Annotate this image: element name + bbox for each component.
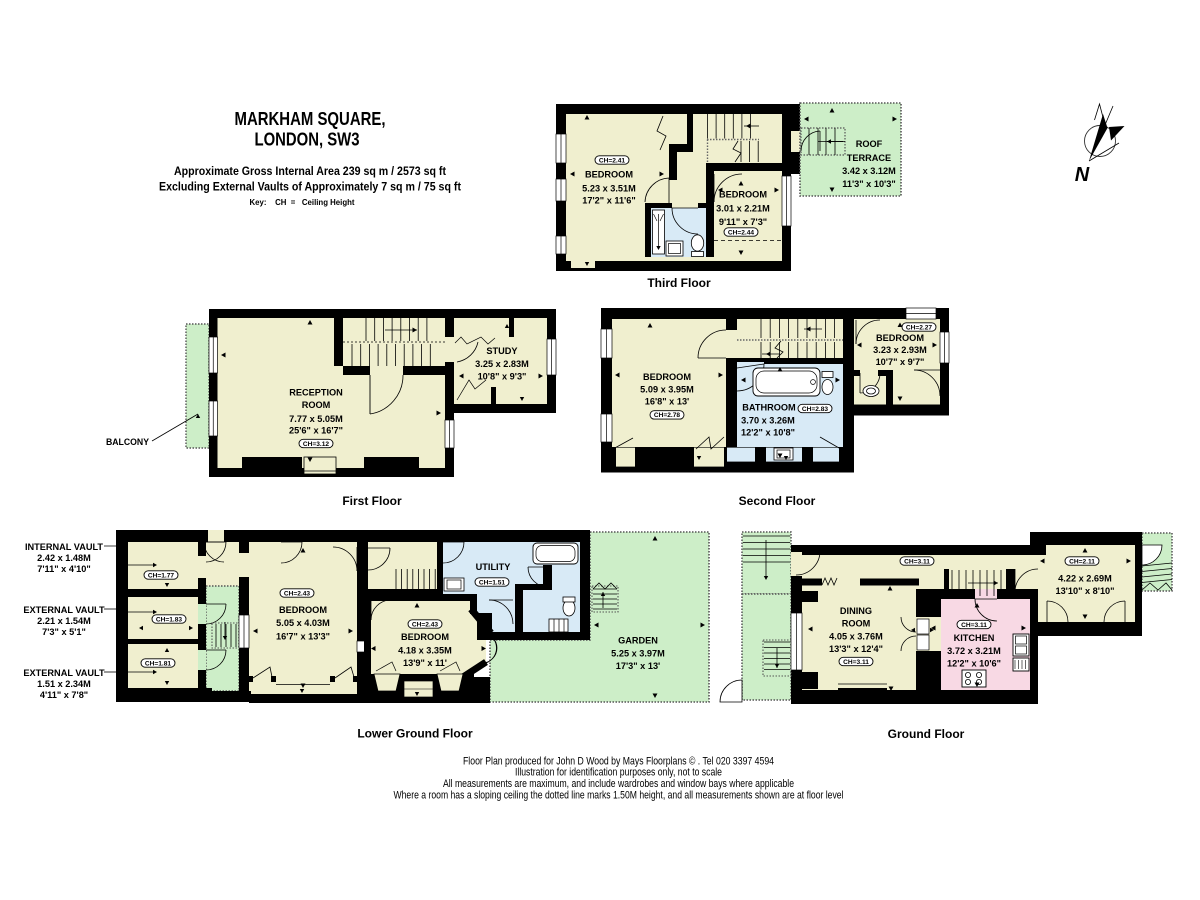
svg-text:Key: CH = Ceiling Height: Key: CH = Ceiling Height	[250, 197, 355, 207]
svg-text:13'10" x 8'10": 13'10" x 8'10"	[1055, 586, 1114, 596]
svg-text:5.25 x 3.97M: 5.25 x 3.97M	[611, 649, 665, 659]
svg-text:Lower Ground Floor: Lower Ground Floor	[357, 727, 473, 741]
svg-text:LONDON, SW3: LONDON, SW3	[255, 130, 360, 150]
svg-text:5.05 x 4.03M: 5.05 x 4.03M	[276, 618, 330, 628]
svg-text:3.42 x 3.12M: 3.42 x 3.12M	[842, 166, 896, 176]
svg-text:7'3" x 5'1": 7'3" x 5'1"	[42, 627, 86, 637]
svg-text:MARKHAM SQUARE,: MARKHAM SQUARE,	[235, 109, 386, 129]
svg-text:ROOF: ROOF	[856, 139, 883, 149]
svg-text:BEDROOM: BEDROOM	[585, 170, 633, 180]
svg-text:CH=1.51: CH=1.51	[479, 579, 506, 586]
svg-text:7.77 x 5.05M: 7.77 x 5.05M	[289, 414, 343, 424]
svg-text:CH=3.11: CH=3.11	[843, 659, 869, 666]
svg-text:BEDROOM: BEDROOM	[401, 632, 449, 642]
svg-text:12'2" x 10'6": 12'2" x 10'6"	[947, 659, 1001, 669]
svg-text:CH=2.83: CH=2.83	[802, 406, 829, 413]
svg-text:9'11" x 7'3": 9'11" x 7'3"	[719, 217, 767, 227]
svg-text:CH=1.83: CH=1.83	[156, 616, 183, 623]
svg-text:UTILITY: UTILITY	[476, 562, 511, 572]
svg-text:Ground Floor: Ground Floor	[888, 727, 965, 741]
svg-text:5.23 x 3.51M: 5.23 x 3.51M	[582, 184, 636, 194]
svg-text:Excluding External Vaults of A: Excluding External Vaults of Approximate…	[159, 180, 461, 194]
svg-text:Approximate Gross Internal Are: Approximate Gross Internal Area 239 sq m…	[174, 164, 446, 178]
svg-text:3.01 x 2.21M: 3.01 x 2.21M	[716, 204, 770, 214]
svg-text:First Floor: First Floor	[342, 494, 402, 508]
svg-text:17'2" x 11'6": 17'2" x 11'6"	[582, 196, 635, 206]
svg-text:10'8" x 9'3": 10'8" x 9'3"	[478, 372, 527, 382]
svg-text:3.70 x 3.26M: 3.70 x 3.26M	[741, 416, 795, 426]
svg-text:13'9" x 11': 13'9" x 11'	[403, 658, 447, 668]
svg-text:3.23 x 2.93M: 3.23 x 2.93M	[873, 345, 927, 355]
svg-text:BEDROOM: BEDROOM	[719, 190, 767, 200]
svg-text:CH=1.77: CH=1.77	[148, 572, 175, 579]
svg-text:EXTERNAL VAULT: EXTERNAL VAULT	[23, 668, 105, 678]
svg-text:2.42 x 1.48M: 2.42 x 1.48M	[37, 553, 91, 563]
svg-text:CH=2.11: CH=2.11	[1069, 558, 1095, 565]
svg-text:CH=2.78: CH=2.78	[654, 412, 681, 419]
svg-text:DINING: DINING	[840, 606, 872, 616]
svg-text:1.51 x 2.34M: 1.51 x 2.34M	[37, 679, 91, 689]
svg-text:17'3" x 13': 17'3" x 13'	[616, 661, 661, 671]
svg-text:N: N	[1075, 164, 1090, 186]
svg-text:CH=3.12: CH=3.12	[303, 441, 330, 448]
svg-text:TERRACE: TERRACE	[847, 153, 891, 163]
svg-text:4'11" x 7'8": 4'11" x 7'8"	[40, 690, 88, 700]
svg-text:CH=2.41: CH=2.41	[599, 157, 626, 164]
svg-text:11'3" x 10'3": 11'3" x 10'3"	[842, 179, 895, 189]
svg-text:4.22 x 2.69M: 4.22 x 2.69M	[1058, 573, 1112, 583]
svg-text:GARDEN: GARDEN	[618, 636, 658, 646]
svg-text:Floor Plan produced for John D: Floor Plan produced for John D Wood by M…	[463, 756, 774, 768]
svg-text:Second Floor: Second Floor	[739, 494, 816, 508]
svg-text:CH=2.27: CH=2.27	[906, 324, 933, 331]
svg-text:CH=2.43: CH=2.43	[412, 621, 439, 628]
svg-text:13'3" x 12'4": 13'3" x 12'4"	[829, 644, 883, 654]
svg-text:CH=2.43: CH=2.43	[284, 590, 311, 597]
svg-text:BALCONY: BALCONY	[106, 437, 149, 447]
svg-text:3.72 x 3.21M: 3.72 x 3.21M	[947, 646, 1001, 656]
svg-text:INTERNAL VAULT: INTERNAL VAULT	[25, 542, 103, 552]
svg-text:ROOM: ROOM	[302, 400, 331, 410]
svg-text:EXTERNAL VAULT: EXTERNAL VAULT	[23, 605, 105, 615]
svg-text:4.18 x 3.35M: 4.18 x 3.35M	[398, 646, 452, 656]
svg-text:BEDROOM: BEDROOM	[279, 605, 327, 615]
svg-text:Illustration for identificatio: Illustration for identification purposes…	[515, 767, 722, 779]
svg-text:CH=1.81: CH=1.81	[145, 660, 172, 667]
svg-text:5.09 x 3.95M: 5.09 x 3.95M	[640, 385, 694, 395]
svg-text:7'11" x 4'10": 7'11" x 4'10"	[37, 564, 90, 574]
svg-text:STUDY: STUDY	[486, 346, 517, 356]
svg-text:2.21 x 1.54M: 2.21 x 1.54M	[37, 616, 91, 626]
svg-text:BEDROOM: BEDROOM	[643, 372, 691, 382]
svg-text:BEDROOM: BEDROOM	[876, 333, 924, 343]
svg-text:Third Floor: Third Floor	[647, 276, 711, 290]
svg-text:3.25 x 2.83M: 3.25 x 2.83M	[475, 359, 529, 369]
svg-text:Where a room has a sloping cei: Where a room has a sloping ceiling the d…	[394, 789, 844, 801]
svg-text:4.05 x 3.76M: 4.05 x 3.76M	[829, 632, 883, 642]
svg-text:KITCHEN: KITCHEN	[954, 633, 995, 643]
svg-text:BATHROOM: BATHROOM	[742, 403, 796, 413]
svg-text:ROOM: ROOM	[842, 619, 871, 629]
svg-text:25'6" x 16'7": 25'6" x 16'7"	[289, 426, 343, 436]
svg-text:CH=3.11: CH=3.11	[961, 622, 987, 629]
svg-text:CH=3.11: CH=3.11	[904, 558, 930, 565]
svg-text:12'2" x 10'8": 12'2" x 10'8"	[741, 428, 795, 438]
svg-text:CH=2.44: CH=2.44	[728, 229, 755, 236]
svg-text:RECEPTION: RECEPTION	[289, 388, 343, 398]
svg-text:10'7" x 9'7": 10'7" x 9'7"	[876, 357, 925, 367]
svg-text:16'7" x 13'3": 16'7" x 13'3"	[276, 632, 330, 642]
svg-text:All measurements are maximum,: All measurements are maximum, and includ…	[443, 778, 794, 790]
svg-text:16'8" x 13': 16'8" x 13'	[645, 397, 690, 407]
